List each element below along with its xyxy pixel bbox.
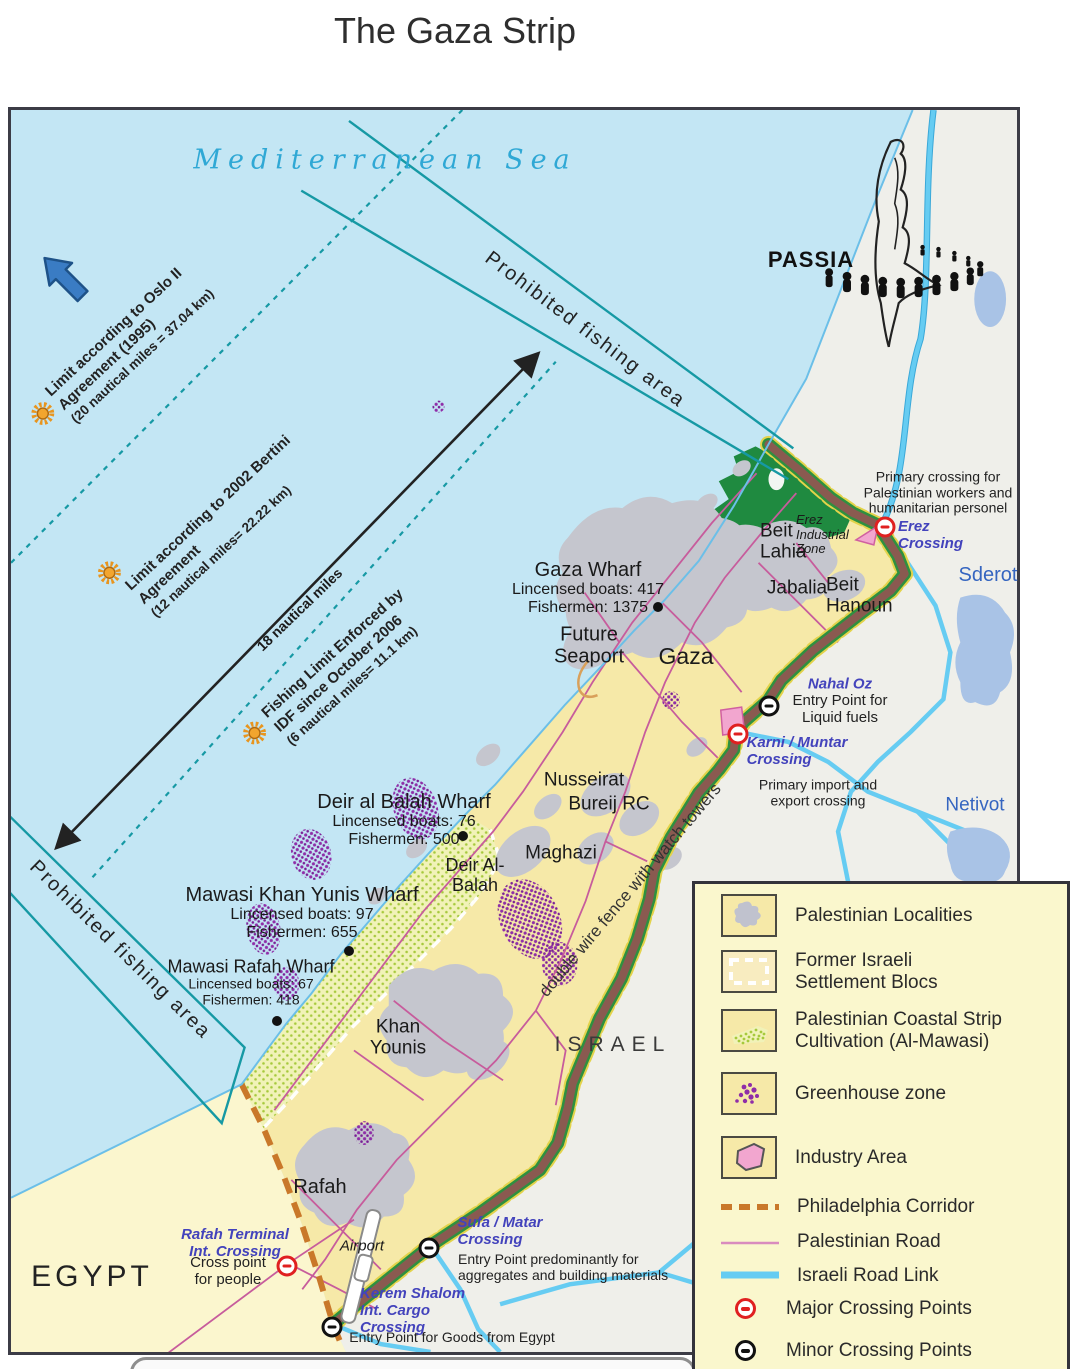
palestinian-road-line-icon [721, 1233, 779, 1251]
rafah-crossing-note: Cross point for people [190, 1255, 266, 1289]
legend-item-pal-road: Palestinian Road [721, 1231, 941, 1253]
gaza-wharf-label: Gaza Wharf Lincensed boats: 417 Fisherme… [512, 559, 664, 617]
mawasi-dots-icon [724, 1012, 774, 1049]
mawasi-ky-wharf-label: Mawasi Khan Yunis Wharf Lincensed boats:… [185, 884, 418, 942]
industry-swatch [721, 1136, 777, 1179]
karni-crossing-icon [728, 724, 749, 745]
karni-crossing-note: Primary import and export crossing [759, 777, 877, 808]
kerem-shalom-crossing-icon [322, 1317, 343, 1338]
place-deir-al-balah: Deir Al-Balah [435, 855, 515, 895]
map-legend: Palestinian Localities Former Israeli Se… [692, 881, 1070, 1369]
settlement-swatch [721, 950, 777, 993]
mawasi-ky-wharf-dot [344, 946, 354, 956]
localities-swatch [721, 894, 777, 937]
erez-crossing-note: Primary crossing for Palestinian workers… [864, 469, 1013, 516]
major-crossing-icon [735, 1298, 756, 1319]
legend-item-mawasi: Palestinian Coastal Strip Cultivation (A… [721, 1009, 1002, 1053]
legend-item-isr-road: Israeli Road Link [721, 1265, 939, 1287]
settlement-dashed-icon [724, 953, 774, 990]
karni-crossing-label: Karni / Muntar Crossing [747, 735, 848, 769]
legend-item-philadelphia: Philadelphia Corridor [721, 1196, 974, 1218]
legend-item-minor-crossing: Minor Crossing Points [735, 1340, 972, 1362]
sea-label: Mediterranean Sea [193, 145, 576, 176]
sufa-crossing-label: Sufa / Matar Crossing [457, 1215, 542, 1249]
place-netivot: Netivot [945, 794, 1004, 815]
sufa-crossing-note: Entry Point predominantly for aggregates… [458, 1252, 668, 1283]
page: The Gaza Strip [0, 0, 1080, 1369]
place-future-seaport: Future Seaport [542, 624, 636, 669]
gaza-wharf-dot [653, 602, 663, 612]
place-egypt: EGYPT [31, 1260, 153, 1294]
place-khan-younis: Khan Younis [366, 1017, 430, 1060]
legend-item-localities: Palestinian Localities [721, 894, 972, 937]
legend-item-greenhouse: Greenhouse zone [721, 1072, 946, 1115]
place-sderot: Sderot [959, 564, 1018, 586]
mawasi-rafah-wharf-dot [272, 1016, 282, 1026]
mawasi-swatch [721, 1009, 777, 1052]
industry-polygon-icon [724, 1139, 774, 1176]
nahal-oz-label: Nahal Oz [808, 677, 872, 694]
place-maghazi: Maghazi [525, 842, 597, 863]
sufa-crossing-icon [419, 1238, 440, 1259]
bottom-panel-cutoff [130, 1357, 696, 1369]
erez-crossing-icon [875, 517, 896, 538]
legend-item-major-crossing: Major Crossing Points [735, 1298, 972, 1320]
place-israel: ISRAEL [555, 1033, 672, 1057]
israeli-road-line-icon [721, 1267, 779, 1285]
kerem-shalom-note: Entry Point for Goods from Egypt [349, 1330, 554, 1346]
place-rafah: Rafah [293, 1176, 346, 1198]
mawasi-rafah-wharf-label: Mawasi Rafah Wharf Lincensed boats: 67 F… [167, 956, 334, 1008]
place-bureij: Bureij RC [568, 793, 649, 814]
place-jabalia: Jabalia [767, 577, 827, 598]
page-title: The Gaza Strip [334, 10, 576, 52]
place-beit-hanoun: Beit Hanoun [826, 575, 898, 618]
legend-item-industry: Industry Area [721, 1136, 907, 1179]
philadelphia-line-icon [721, 1198, 779, 1216]
greenhouse-swatch [721, 1072, 777, 1115]
localities-blob-icon [724, 897, 774, 934]
nahal-oz-note: Entry Point for Liquid fuels [792, 693, 887, 727]
rafah-crossing-icon [277, 1256, 298, 1277]
place-gaza: Gaza [659, 644, 714, 670]
deir-wharf-dot [458, 831, 468, 841]
passia-label: PASSIA [768, 247, 854, 273]
nahal-oz-crossing-icon [759, 696, 780, 717]
legend-item-settlements: Former Israeli Settlement Blocs [721, 950, 938, 994]
place-nusseirat: Nusseirat [544, 769, 624, 790]
place-airport: Airport [340, 1239, 384, 1256]
greenhouse-dots-icon [724, 1075, 774, 1112]
minor-crossing-icon [735, 1340, 756, 1361]
erez-crossing-label: Erez Crossing [898, 519, 968, 553]
place-erez-industrial-zone: Erez Industrial Zone [796, 513, 870, 557]
